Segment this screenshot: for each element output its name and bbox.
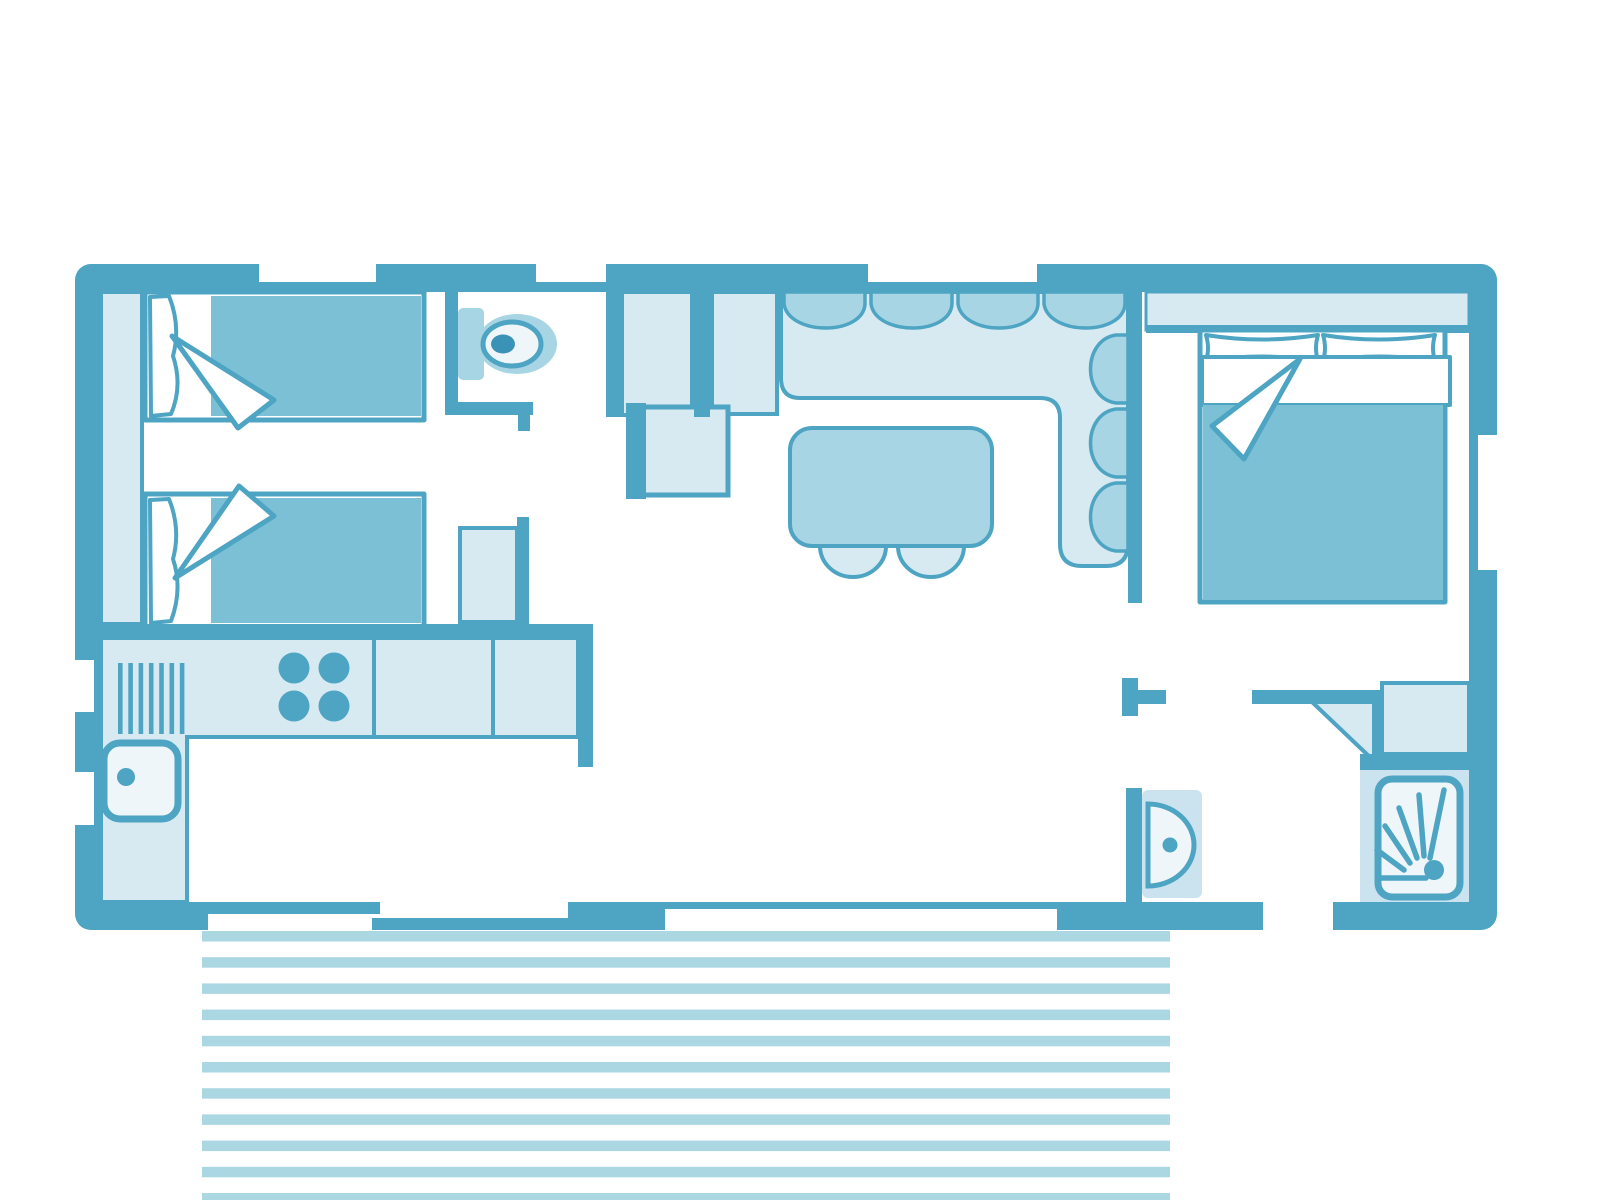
- sink-drain: [117, 768, 135, 786]
- master-bedroom: [1146, 292, 1469, 602]
- window-opening: [536, 264, 606, 282]
- washbasin-drain: [1163, 838, 1178, 853]
- sheet-band: [1202, 357, 1450, 405]
- window-opening: [1478, 435, 1497, 570]
- shower-drain: [1424, 860, 1444, 880]
- decking-plank: [202, 1010, 1170, 1021]
- decking-plank: [202, 1036, 1170, 1047]
- decking-plank: [202, 931, 1170, 942]
- decking-plank: [202, 1141, 1170, 1152]
- toilet-drain: [491, 335, 515, 354]
- hall-wall-stub: [1122, 678, 1138, 716]
- sliding-door-panel: [208, 902, 380, 914]
- sofa-back-cushion: [1091, 335, 1129, 403]
- sofa-back-cushion: [784, 292, 865, 328]
- patio-door-glass: [665, 902, 1057, 909]
- drainer-bar: [149, 663, 154, 734]
- drainer-bar: [128, 663, 133, 734]
- hob-burner: [319, 653, 350, 684]
- counter-end-panel: [578, 638, 593, 767]
- door-jamb: [518, 413, 530, 431]
- decking-plank: [202, 1088, 1170, 1099]
- decking-plank: [202, 957, 1170, 968]
- drainer-bar: [180, 663, 185, 734]
- wc-room: [458, 308, 557, 380]
- dining-table: [790, 428, 992, 546]
- closet: [460, 528, 517, 622]
- window-opening: [75, 660, 94, 712]
- fridge-unit-side-panel: [626, 403, 646, 499]
- decking-plank: [202, 983, 1170, 994]
- window-opening: [75, 772, 94, 825]
- hob-burner: [279, 653, 310, 684]
- drainer-bar: [159, 663, 164, 734]
- bathroom: [1142, 683, 1469, 908]
- washbasin-wall: [1126, 788, 1142, 930]
- shower-divider-wall: [1360, 754, 1469, 770]
- chair: [898, 546, 964, 577]
- window-opening: [868, 264, 1037, 282]
- wardrobe: [1146, 292, 1469, 330]
- single-bed-1: [145, 292, 424, 428]
- pillow: [150, 499, 178, 623]
- single-bed-2: [145, 486, 424, 627]
- floor-plan: [0, 0, 1600, 1200]
- partition-wall: [606, 278, 622, 417]
- sofa-back-cushion: [1091, 483, 1129, 551]
- sofa-back-cushion: [1091, 409, 1129, 477]
- sofa-back-cushion: [1044, 292, 1125, 328]
- tall-cabinet-a: [622, 292, 692, 415]
- pillow: [150, 296, 178, 416]
- chair: [820, 546, 886, 577]
- tall-cabinet-b: [712, 292, 777, 414]
- fridge-unit: [634, 407, 728, 495]
- sink: [104, 743, 178, 819]
- sofa-back-cushion: [871, 292, 952, 328]
- drainer-bar: [139, 663, 144, 734]
- living-master-wall: [1128, 278, 1142, 603]
- floor-plan-canvas: [0, 0, 1600, 1200]
- hob-burner: [279, 691, 310, 722]
- decking-plank: [202, 1193, 1170, 1200]
- closet-wall: [517, 517, 529, 627]
- double-bed: [1200, 330, 1450, 602]
- bedroom-kitchen-wall: [97, 624, 593, 638]
- bathroom-cabinet: [1382, 683, 1469, 754]
- window-opening: [259, 264, 376, 282]
- decking-plank: [202, 1167, 1170, 1178]
- drainer-bar: [170, 663, 175, 734]
- drainer-bar: [118, 663, 123, 734]
- partition-wall: [694, 278, 710, 417]
- terrace-decking: [202, 931, 1170, 1200]
- hall-wall-stub: [1138, 690, 1166, 704]
- kitchen: [97, 638, 578, 902]
- door-opening: [1263, 902, 1333, 930]
- wc-wall: [445, 278, 458, 413]
- wardrobe: [100, 292, 142, 624]
- sliding-door-panel: [372, 918, 568, 930]
- decking-plank: [202, 1114, 1170, 1125]
- decking-plank: [202, 1062, 1170, 1073]
- sofa-back-cushion: [958, 292, 1038, 328]
- bathroom-wall: [1252, 690, 1372, 704]
- hob-burner: [319, 691, 350, 722]
